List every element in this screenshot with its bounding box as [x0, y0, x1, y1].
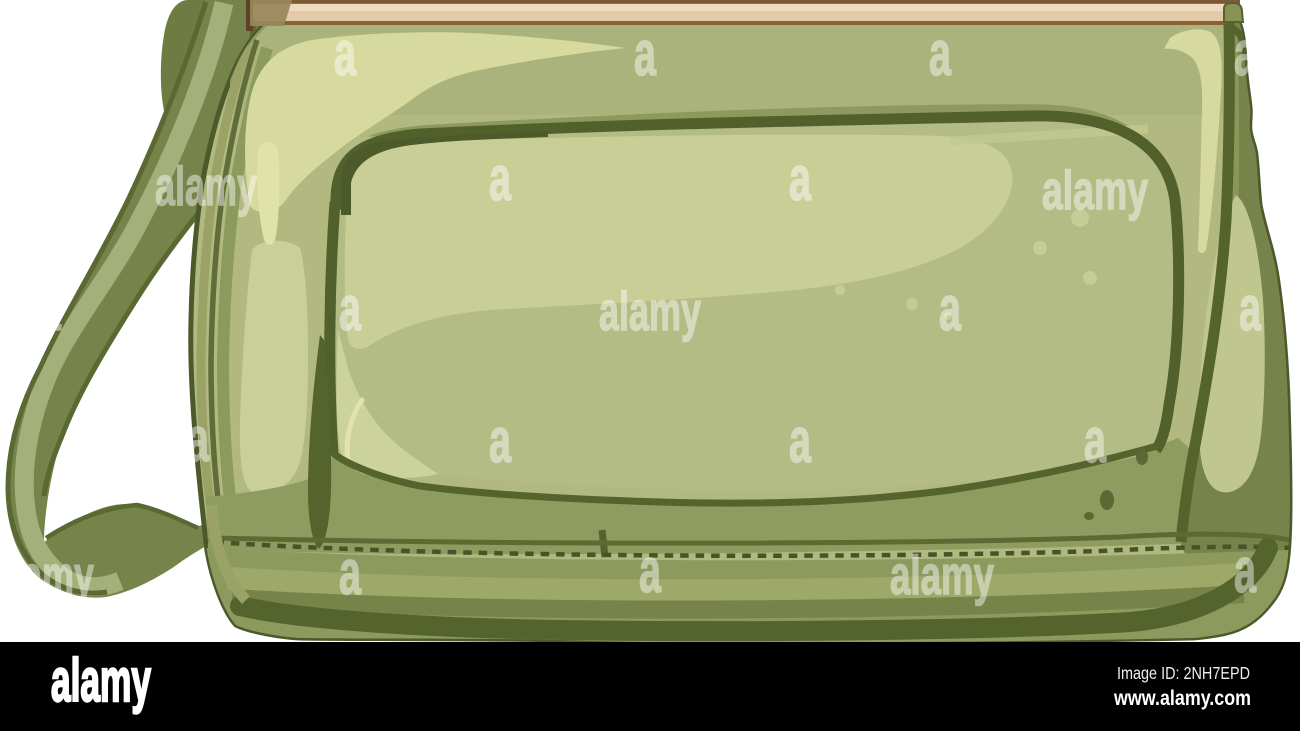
svg-text:a: a	[334, 19, 357, 89]
svg-text:a: a	[489, 406, 512, 476]
svg-text:a: a	[1239, 274, 1262, 344]
svg-text:a: a	[1084, 406, 1107, 476]
svg-text:alamy: alamy	[890, 544, 994, 606]
svg-text:alamy: alamy	[1042, 159, 1148, 221]
svg-text:Image ID: 2NH7EPD: Image ID: 2NH7EPD	[1117, 663, 1250, 683]
svg-text:a: a	[489, 144, 512, 214]
svg-text:a: a	[929, 19, 952, 89]
svg-text:a: a	[789, 144, 812, 214]
svg-text:a: a	[1234, 19, 1257, 89]
svg-text:a: a	[339, 538, 362, 608]
svg-text:a: a	[639, 536, 662, 606]
svg-text:alamy: alamy	[0, 544, 94, 606]
svg-text:alamy: alamy	[599, 280, 701, 342]
svg-text:a: a	[634, 19, 657, 89]
svg-text:a: a	[789, 406, 812, 476]
svg-text:www.alamy.com: www.alamy.com	[1113, 687, 1251, 710]
svg-text:alamy: alamy	[51, 647, 151, 714]
svg-text:a: a	[339, 274, 362, 344]
svg-text:a: a	[939, 274, 962, 344]
svg-text:a: a	[187, 405, 210, 475]
svg-text:a: a	[1234, 536, 1257, 606]
svg-text:a: a	[39, 274, 62, 344]
svg-text:alamy: alamy	[155, 155, 257, 217]
